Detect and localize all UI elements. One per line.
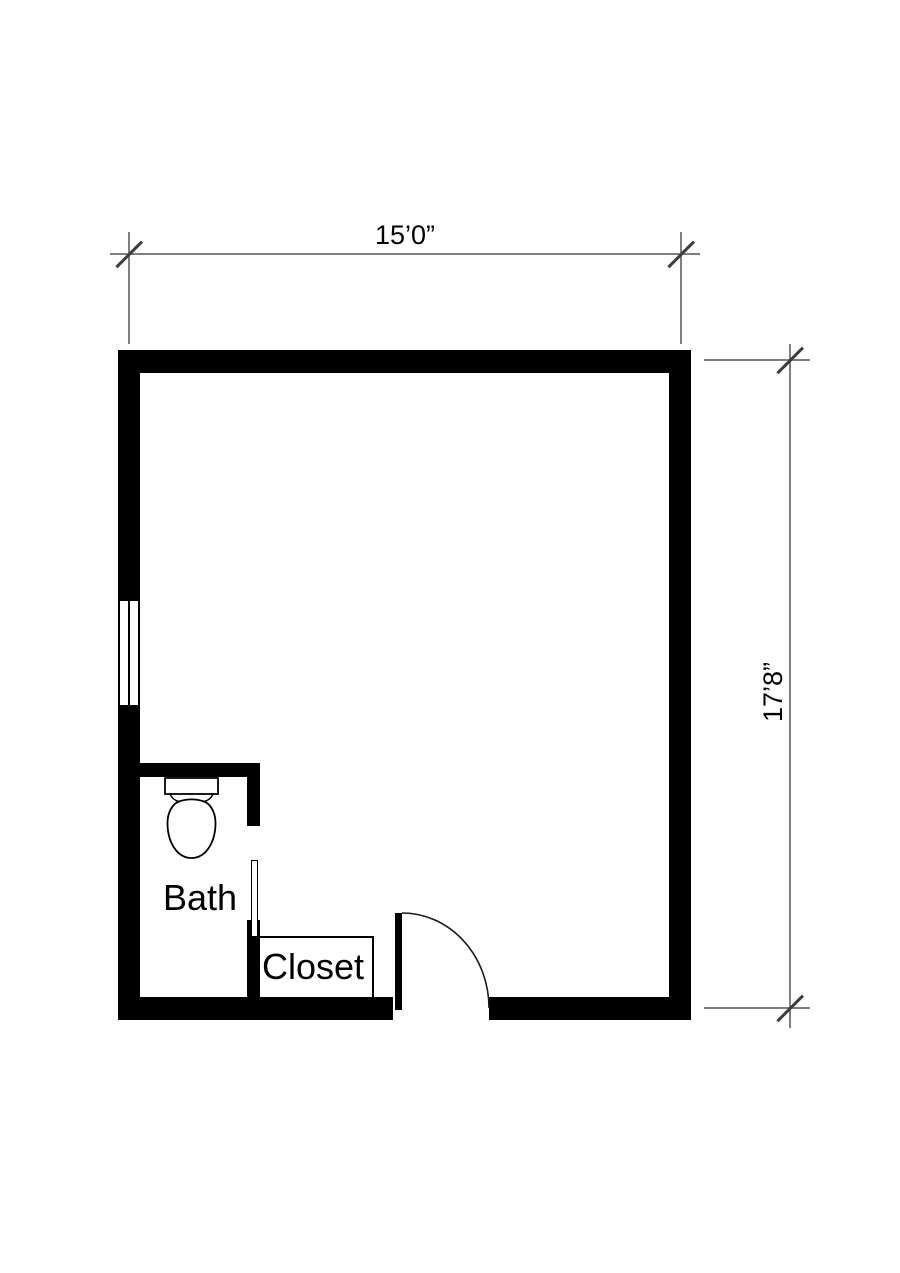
toilet-icon [158, 770, 232, 866]
wall-bath-divider-upper [247, 777, 260, 826]
dimension-height-label: 17’8” [758, 622, 788, 762]
wall-right [669, 350, 691, 1020]
wall-top [118, 350, 691, 373]
entry-door-swing-arc [398, 908, 498, 1014]
window [118, 599, 140, 707]
dimension-width-extension-left [128, 232, 130, 344]
wall-left-lower [118, 707, 140, 1020]
closet-door [251, 860, 258, 937]
wall-left-upper [118, 350, 140, 599]
dimension-width-extension-right [680, 232, 682, 344]
dimension-width-label: 15’0” [300, 220, 510, 251]
dimension-height-line [789, 344, 791, 1028]
dimension-height-extension-top [704, 359, 810, 361]
bath-label: Bath [163, 877, 237, 919]
dimension-height-extension-bottom [704, 1007, 810, 1009]
wall-bottom-left [118, 997, 393, 1020]
closet-label: Closet [262, 946, 364, 988]
floor-plan: Bath Closet 15’0” 17’8” [0, 0, 900, 1273]
wall-bottom-right [489, 997, 691, 1020]
window-center-line [128, 601, 130, 705]
dimension-width-line [110, 253, 700, 255]
entry-door-leaf [395, 913, 402, 1010]
